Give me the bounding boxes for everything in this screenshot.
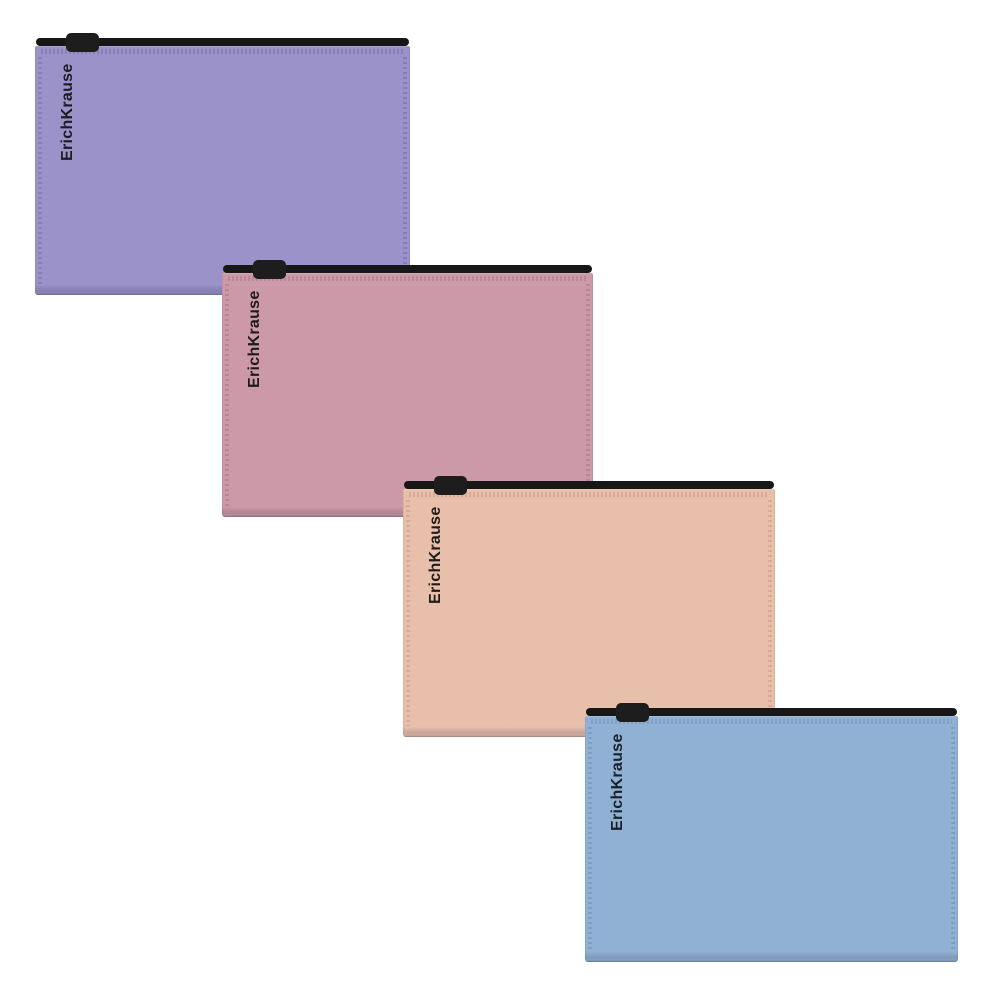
pouch-body: ErichKrause xyxy=(585,716,958,962)
pouch-body: ErichKrause xyxy=(403,489,775,737)
stitching-left xyxy=(406,500,410,726)
brand-logo: ErichKrause xyxy=(59,63,77,161)
zip-pouch-peach: ErichKrause xyxy=(403,476,775,737)
stitching-right xyxy=(403,57,407,284)
stitching-left xyxy=(38,57,42,284)
stitching-left xyxy=(225,284,229,506)
zip-pouch-blue: ErichKrause xyxy=(585,703,958,962)
zip-pouch-lavender: ErichKrause xyxy=(35,33,410,295)
pouch-body: ErichKrause xyxy=(35,46,410,295)
brand-logo: ErichKrause xyxy=(246,290,264,388)
stitching-right xyxy=(586,284,590,506)
product-gallery: ErichKrause ErichKrause ErichKrause xyxy=(0,0,1000,1000)
brand-logo: ErichKrause xyxy=(427,506,445,604)
brand-logo: ErichKrause xyxy=(609,733,627,831)
zipper-pull xyxy=(434,476,467,495)
zipper-pull xyxy=(253,260,286,279)
zipper-pull xyxy=(66,33,99,52)
stitching-right xyxy=(768,500,772,726)
stitching-right xyxy=(951,727,955,951)
stitching-left xyxy=(588,727,592,951)
zipper-pull xyxy=(616,703,649,722)
bottom-fold-shadow xyxy=(585,952,958,962)
